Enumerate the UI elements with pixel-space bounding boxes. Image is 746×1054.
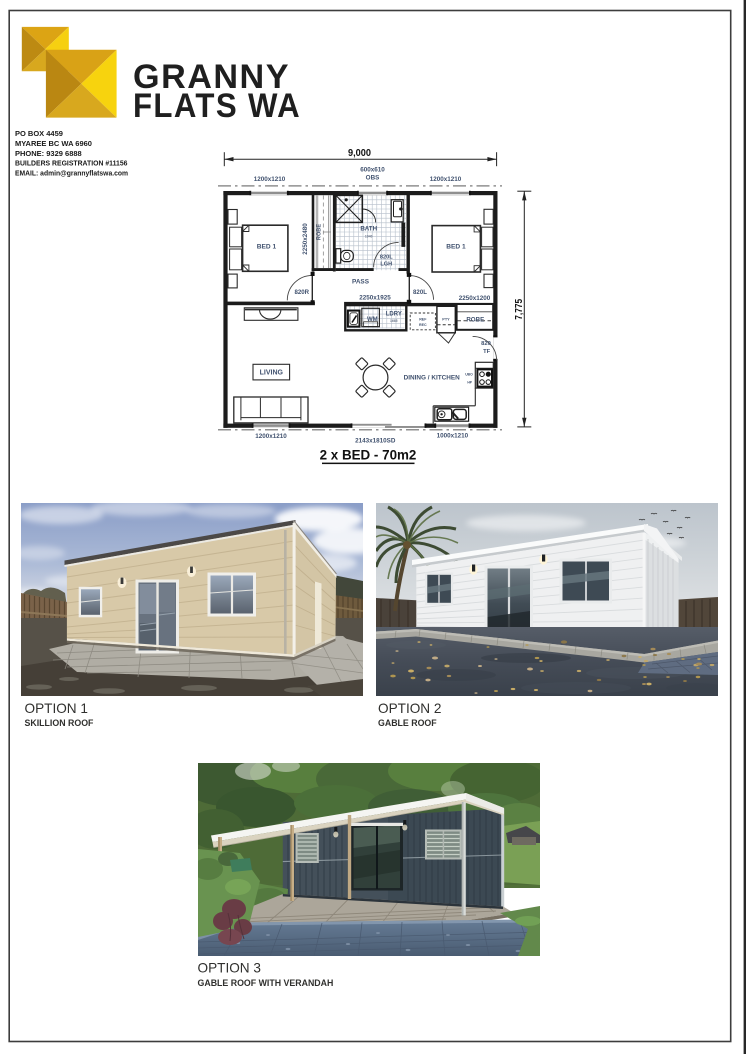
svg-text:2 x BED - 70m2: 2 x BED - 70m2	[320, 448, 417, 463]
svg-text:1200x1210: 1200x1210	[430, 176, 462, 183]
svg-text:1665: 1665	[390, 319, 398, 323]
svg-text:820L: 820L	[413, 289, 427, 296]
svg-text:GABLE ROOF WITH VERANDAH: GABLE ROOF WITH VERANDAH	[198, 978, 334, 988]
svg-text:UBO: UBO	[465, 373, 473, 377]
svg-text:OPTION 3: OPTION 3	[198, 961, 261, 976]
svg-text:HP: HP	[467, 381, 472, 385]
svg-text:1200x1210: 1200x1210	[254, 176, 286, 183]
svg-text:LGH: LGH	[380, 262, 392, 268]
svg-text:BED 1: BED 1	[446, 243, 466, 250]
svg-text:2250x1925: 2250x1925	[359, 295, 391, 302]
svg-text:BUILDERS REGISTRATION #11156: BUILDERS REGISTRATION #11156	[15, 159, 128, 168]
svg-text:ROBE: ROBE	[316, 224, 322, 240]
svg-text:2143x1810SD: 2143x1810SD	[355, 438, 396, 445]
svg-text:BED 1: BED 1	[257, 243, 277, 250]
svg-text:LIVING: LIVING	[260, 370, 284, 377]
svg-text:WM: WM	[367, 317, 378, 323]
svg-text:820L: 820L	[380, 254, 393, 260]
svg-text:600x610: 600x610	[360, 167, 385, 174]
svg-text:DINING / KITCHEN: DINING / KITCHEN	[404, 374, 460, 381]
svg-text:MYAREE BC WA 6960: MYAREE BC WA 6960	[15, 139, 92, 148]
svg-text:PASS: PASS	[352, 279, 370, 286]
svg-text:LDRY: LDRY	[386, 311, 402, 317]
svg-text:7,775: 7,775	[514, 298, 525, 319]
svg-text:1940: 1940	[365, 235, 373, 239]
svg-text:EMAIL: admin@grannyflatswa.co: EMAIL: admin@grannyflatswa.com	[15, 168, 128, 177]
svg-text:GABLE ROOF: GABLE ROOF	[378, 718, 437, 728]
svg-text:ROBE: ROBE	[466, 316, 484, 323]
svg-text:BATH: BATH	[360, 226, 377, 233]
svg-text:REC: REC	[419, 323, 427, 327]
svg-text:TF: TF	[483, 349, 491, 355]
svg-text:9,000: 9,000	[348, 148, 371, 159]
svg-text:2250x1200: 2250x1200	[459, 295, 491, 302]
svg-text:2250x2480: 2250x2480	[302, 223, 309, 255]
svg-text:PTY: PTY	[442, 318, 450, 322]
svg-text:1000x1210: 1000x1210	[437, 433, 469, 440]
svg-text:1200x1210: 1200x1210	[255, 433, 287, 440]
svg-text:820R: 820R	[295, 289, 310, 296]
svg-text:REF: REF	[419, 317, 427, 321]
svg-text:SKILLION ROOF: SKILLION ROOF	[25, 718, 95, 728]
svg-text:PHONE: 9329 6888: PHONE: 9329 6888	[15, 149, 82, 158]
svg-text:820: 820	[481, 341, 491, 347]
svg-text:FLATS WA: FLATS WA	[133, 87, 301, 125]
svg-text:PO BOX 4459: PO BOX 4459	[15, 129, 63, 138]
svg-text:OPTION 2: OPTION 2	[378, 701, 441, 716]
svg-text:OBS: OBS	[366, 175, 380, 182]
svg-text:OPTION 1: OPTION 1	[25, 701, 88, 716]
